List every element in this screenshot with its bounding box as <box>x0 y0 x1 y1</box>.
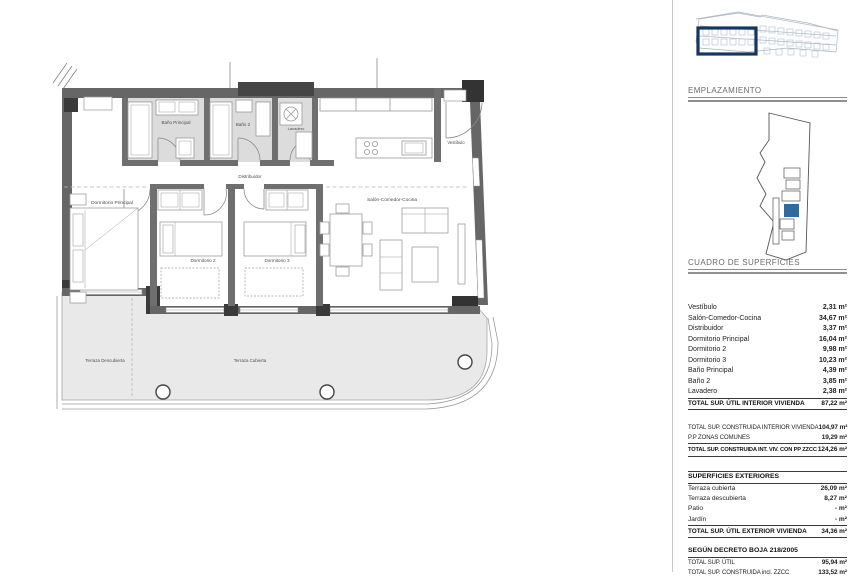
total-interior-row: TOTAL SUP. ÚTIL INTERIOR VIVIENDA87,22 m… <box>688 398 847 411</box>
room-label-terraza-cubierta: Terraza Cubierta <box>234 358 267 363</box>
row-value: 2,31 m² <box>823 303 847 314</box>
row-label: Distribuidor <box>688 324 723 335</box>
row-value: 19,29 m² <box>822 433 847 442</box>
row-label: P.P ZONAS COMUNES <box>688 434 750 443</box>
cuadro-title: CUADRO DE SUPERFICIES <box>688 258 847 270</box>
table-row: Lavadero2,38 m² <box>688 387 847 398</box>
row-label: TOTAL SUP. CONSTRUIDA INTERIOR VIVIENDA <box>688 424 819 433</box>
table-row: Dormitorio 310,23 m² <box>688 356 847 367</box>
row-value: 2,38 m² <box>823 387 847 398</box>
row-value: 34,67 m² <box>819 314 847 325</box>
table-row: Dormitorio 29,98 m² <box>688 345 847 356</box>
room-label-dormitorio-3: Dormitorio 3 <box>264 258 289 263</box>
row-label: TOTAL SUP. CONSTRUIDA INT. VIV. CON PP Z… <box>688 447 817 455</box>
table-row: TOTAL SUP. ÚTIL95,94 m² <box>688 558 847 568</box>
site-plan <box>700 110 835 262</box>
panel-divider <box>672 0 673 572</box>
row-label: Baño 2 <box>688 377 710 388</box>
row-value: 104,97 m² <box>819 423 848 432</box>
row-label: Jardín <box>688 515 706 525</box>
room-label-terraza-descubierta: Terraza Descubierta <box>85 358 125 363</box>
row-label: Lavadero <box>688 387 717 398</box>
surfaces-table: Vestíbulo2,31 m² Salón-Comedor-Cocina34,… <box>688 303 847 578</box>
row-label: TOTAL SUP. ÚTIL <box>688 559 735 568</box>
exteriores-title: SUPERFICIES EXTERIORES <box>688 471 847 484</box>
table-row: Distribuidor3,37 m² <box>688 324 847 335</box>
row-value: 10,23 m² <box>819 356 847 367</box>
table-row: Terraza cubierta26,09 m² <box>688 484 847 494</box>
dimension-marks <box>53 58 377 89</box>
room-label-distribuidor: Distribuidor <box>238 174 262 179</box>
row-label: Baño Principal <box>688 366 733 377</box>
table-row: Baño 23,85 m² <box>688 377 847 388</box>
emplazamiento-title: EMPLAZAMIENTO <box>688 86 847 98</box>
floor-plan: Baño Principal Baño 2 Lavadero Vestíbulo… <box>0 0 672 572</box>
row-value: 133,52 m² <box>818 568 847 577</box>
row-value: 26,09 m² <box>821 484 847 494</box>
table-row: Terraza descubierta8,27 m² <box>688 494 847 504</box>
row-value: 9,98 m² <box>823 345 847 356</box>
building-elevation <box>688 6 842 64</box>
table-row: Vestíbulo2,31 m² <box>688 303 847 314</box>
plan-sheet: { "plan": { "labels": { "bano_principal"… <box>0 0 850 572</box>
built-surface-block: TOTAL SUP. CONSTRUIDA INTERIOR VIVIENDA1… <box>688 423 847 457</box>
table-row: Dormitorio Principal16,04 m² <box>688 335 847 346</box>
room-label-dormitorio-2: Dormitorio 2 <box>190 258 215 263</box>
table-row: TOTAL SUP. CONSTRUIDA INTERIOR VIVIENDA1… <box>688 423 847 433</box>
row-value: 34,36 m² <box>821 528 847 536</box>
emplazamiento-underline <box>688 100 847 103</box>
emplazamiento-section-header: EMPLAZAMIENTO <box>688 86 847 102</box>
decreto-block: SEGÚN DECRETO BOJA 218/2005 TOTAL SUP. Ú… <box>688 546 847 578</box>
living-furniture <box>320 204 465 290</box>
row-value: 8,27 m² <box>824 494 847 504</box>
row-value: 3,85 m² <box>823 377 847 388</box>
room-label-bano-2: Baño 2 <box>236 122 251 127</box>
room-label-vestibulo: Vestíbulo <box>447 140 465 145</box>
row-label: Terraza cubierta <box>688 484 735 494</box>
row-label: Vestíbulo <box>688 303 717 314</box>
row-label: Salón-Comedor-Cocina <box>688 314 761 325</box>
row-label: Patio <box>688 504 703 514</box>
row-value: 95,94 m² <box>822 558 847 567</box>
row-label: Dormitorio 3 <box>688 356 726 367</box>
row-value: 16,04 m² <box>819 335 847 346</box>
row-label: Dormitorio 2 <box>688 345 726 356</box>
decreto-title: SEGÚN DECRETO BOJA 218/2005 <box>688 546 847 558</box>
table-row: P.P ZONAS COMUNES19,29 m² <box>688 433 847 443</box>
table-row: Patio- m² <box>688 504 847 514</box>
site-unit-marker <box>784 204 799 217</box>
row-label: Dormitorio Principal <box>688 335 749 346</box>
row-value: - m² <box>835 504 847 514</box>
row-value: 3,37 m² <box>823 324 847 335</box>
table-row: TOTAL SUP. CONSTRUIDA incl. ZZCC133,52 m… <box>688 568 847 578</box>
row-label: TOTAL SUP. ÚTIL INTERIOR VIVIENDA <box>688 400 805 408</box>
exterior-surfaces-block: SUPERFICIES EXTERIORES Terraza cubierta2… <box>688 471 847 538</box>
total-exterior-row: TOTAL SUP. ÚTIL EXTERIOR VIVIENDA34,36 m… <box>688 525 847 538</box>
bedroom-furniture <box>70 190 308 303</box>
row-label: Terraza descubierta <box>688 494 746 504</box>
table-row: Jardín- m² <box>688 515 847 525</box>
row-label: TOTAL SUP. CONSTRUIDA incl. ZZCC <box>688 569 789 578</box>
row-value: 124,26 m² <box>818 446 847 454</box>
room-label-salon: Salón-Comedor-Cocina <box>367 197 417 203</box>
total-built-row: TOTAL SUP. CONSTRUIDA INT. VIV. CON PP Z… <box>688 443 847 457</box>
row-value: 87,22 m² <box>821 400 847 408</box>
kitchen <box>320 98 432 158</box>
room-label-bano-principal: Baño Principal <box>161 120 190 125</box>
table-row: Baño Principal4,39 m² <box>688 366 847 377</box>
cuadro-section-header: CUADRO DE SUPERFICIES <box>688 258 847 274</box>
room-label-lavadero: Lavadero <box>288 126 305 131</box>
row-value: - m² <box>835 515 847 525</box>
row-label: TOTAL SUP. ÚTIL EXTERIOR VIVIENDA <box>688 528 807 536</box>
cuadro-underline <box>688 272 847 275</box>
row-value: 4,39 m² <box>823 366 847 377</box>
room-label-dormitorio-principal: Dormitorio Principal <box>91 200 133 206</box>
table-row: Salón-Comedor-Cocina34,67 m² <box>688 314 847 325</box>
